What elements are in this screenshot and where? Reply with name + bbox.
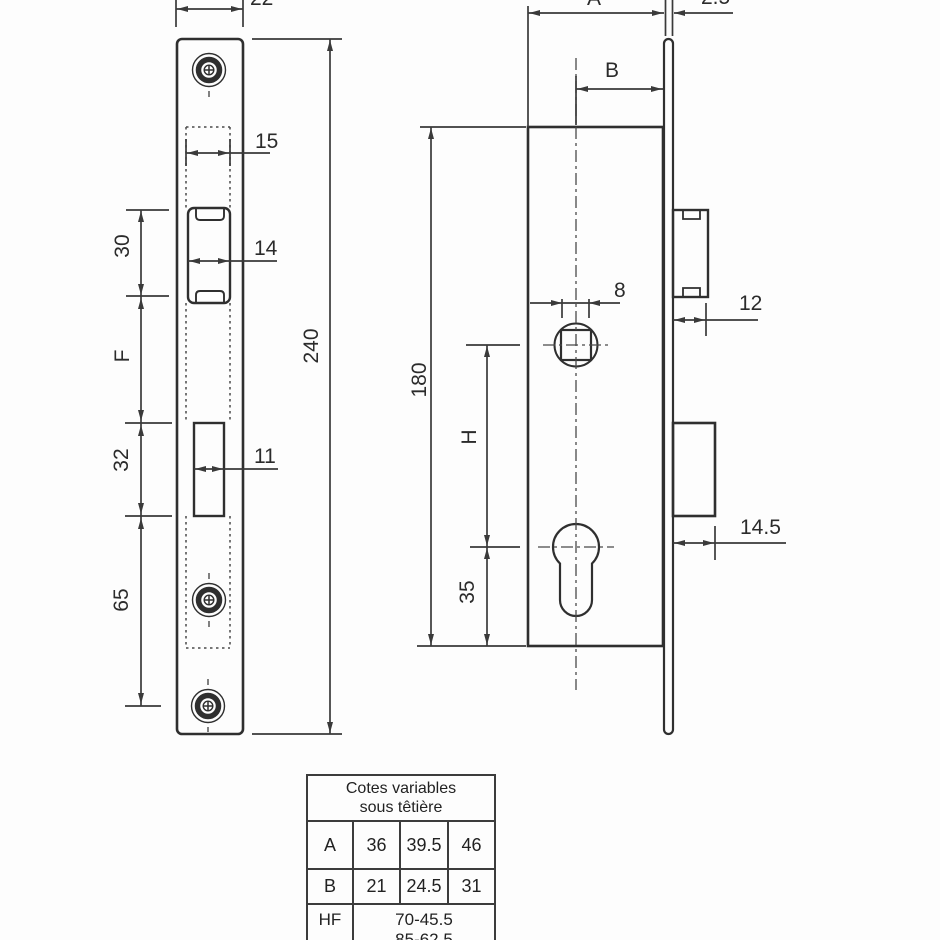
dim-label-32: 32	[111, 446, 133, 474]
table-header-row: Cotes variables sous têtière	[307, 775, 495, 821]
table-row-B: B 21 24.5 31	[307, 869, 495, 904]
table-cell: 24.5	[400, 869, 448, 904]
dim-label-240: 240	[301, 324, 323, 368]
screw-hole-top	[193, 54, 226, 98]
table-row-HF: HF 70-45.5 85-62.5	[307, 904, 495, 940]
faceplate-front-outline	[177, 39, 243, 734]
row-label: HF	[307, 904, 353, 940]
dim-label-180: 180	[409, 358, 431, 402]
dim-label-A: A	[587, 0, 601, 10]
table-title-line2: sous têtière	[308, 798, 494, 817]
table-cell: 39.5	[400, 821, 448, 869]
hidden-case-outline	[186, 127, 230, 648]
dim-label-14: 14	[254, 238, 277, 260]
dim-label-2-5: 2.5	[701, 0, 730, 9]
row-label: B	[307, 869, 353, 904]
lock-dimension-drawing: 22 15 30 14 F 32 11 65 240 A 2.5 B 8 12 …	[0, 0, 940, 940]
variable-dimensions-table: Cotes variables sous têtière A 36 39.5 4…	[306, 774, 496, 940]
dim-label-30: 30	[112, 232, 134, 260]
hf-value-line2: 85-62.5	[354, 930, 494, 940]
table-title-line1: Cotes variables	[308, 779, 494, 798]
hf-value-line1: 70-45.5	[354, 910, 494, 930]
center-lines	[538, 58, 614, 690]
dim-label-8: 8	[614, 280, 626, 302]
dim-label-65: 65	[111, 586, 133, 614]
dim-label-35: 35	[457, 578, 479, 606]
table-cell-hf-values: 70-45.5 85-62.5	[353, 904, 495, 940]
dim-label-14-5: 14.5	[740, 517, 781, 539]
table-title-cell: Cotes variables sous têtière	[307, 775, 495, 821]
table-cell: 46	[448, 821, 495, 869]
deadbolt	[673, 423, 715, 516]
table-cell: 31	[448, 869, 495, 904]
table-row-A: A 36 39.5 46	[307, 821, 495, 869]
dim-label-H: H	[459, 423, 481, 451]
lock-case-outline	[528, 127, 663, 646]
table-cell: 21	[353, 869, 400, 904]
dim-label-11: 11	[254, 446, 276, 468]
dim-label-B: B	[605, 60, 619, 82]
dim-label-22: 22	[250, 0, 273, 10]
dim-label-F: F	[112, 342, 134, 370]
side-dimension-lines	[417, 0, 786, 646]
dim-label-12: 12	[739, 293, 762, 315]
screw-hole-bottom	[192, 679, 225, 732]
table-cell: 36	[353, 821, 400, 869]
faceplate-side-outline	[664, 39, 673, 734]
row-label: A	[307, 821, 353, 869]
dim-label-15: 15	[255, 131, 278, 153]
screw-hole-middle	[193, 573, 226, 627]
latch-bolt	[673, 210, 708, 297]
latch-cutout	[188, 208, 230, 303]
